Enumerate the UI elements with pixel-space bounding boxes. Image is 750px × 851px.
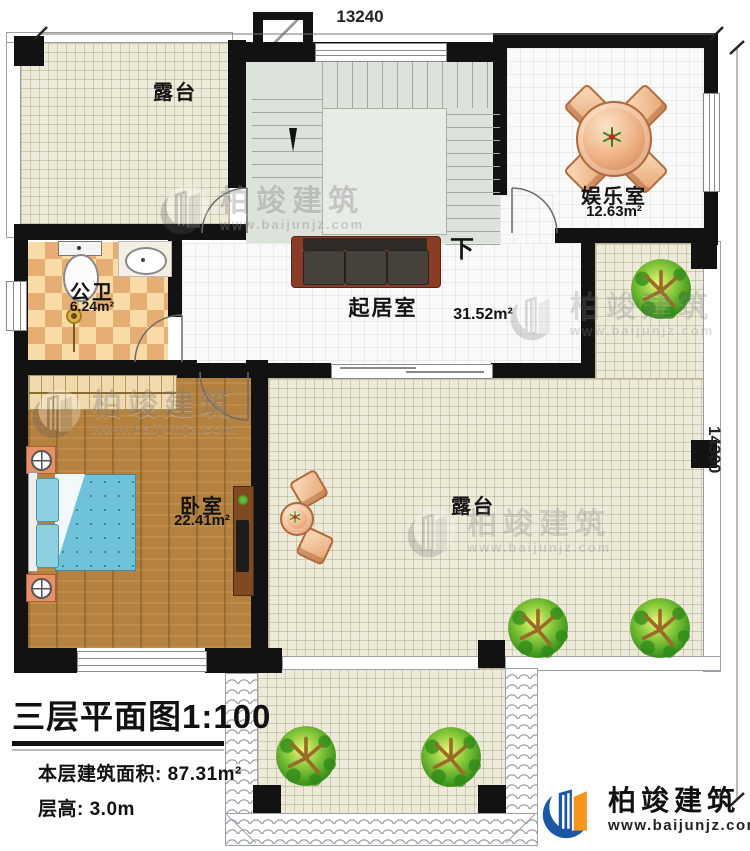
column — [478, 640, 505, 668]
plan-scale: 1:100 — [182, 698, 271, 735]
brand-website: www.baijunjz.com — [608, 817, 750, 834]
room-area-bathroom: 6.24m² — [56, 298, 128, 314]
brand-name: 柏竣建筑 — [608, 786, 750, 817]
stair-landing — [322, 108, 447, 235]
wall — [491, 363, 595, 378]
wall — [14, 363, 28, 673]
wall — [228, 40, 246, 188]
sink-basin — [125, 247, 167, 275]
terrace-railing-bottom-mid — [282, 656, 480, 670]
window — [77, 651, 207, 672]
wall — [205, 648, 282, 673]
floor-height-value: 3.0m — [90, 799, 135, 820]
window — [315, 43, 447, 62]
desk-plant — [238, 495, 248, 505]
sliding-door-panel — [406, 371, 484, 373]
table-flower-icon — [600, 125, 624, 149]
wall — [14, 36, 44, 66]
title-underline — [12, 741, 224, 746]
column — [478, 785, 506, 813]
sliding-door-panel — [340, 367, 416, 369]
plan-title: 三层平面图1:100 — [12, 690, 312, 738]
wall — [493, 33, 718, 48]
floor-plan: 下 露台 娱乐室 12.63m² 公卫 6.24m² 起居室 31.5 — [0, 0, 750, 851]
stair-down-label: 下 — [443, 229, 483, 264]
toilet-button — [77, 246, 81, 250]
room-area-living: 31.52m² — [438, 306, 528, 324]
floor-area-label: 本层建筑面积: — [38, 764, 162, 785]
room-area-bedroom: 22.41m² — [156, 512, 248, 529]
terrace-main-floor — [268, 378, 705, 660]
plan-title-text: 三层平面图 — [12, 698, 182, 735]
floor-area-value: 87.31m² — [168, 764, 242, 785]
wall — [14, 224, 246, 240]
roof-tile-band-right — [505, 668, 538, 816]
dimension-top: 13240 — [315, 7, 405, 27]
title-block: 三层平面图1:100 本层建筑面积: 87.31m² 层高: 3.0m — [12, 690, 312, 821]
hall-floor — [500, 195, 555, 243]
stair-treads-left — [252, 95, 322, 178]
nightstand-lamp — [31, 450, 52, 471]
sink-drain — [141, 258, 145, 262]
brand-logo: 柏竣建筑 www.baijunjz.com — [540, 780, 750, 840]
dimension-right: 14300 — [704, 426, 724, 473]
window — [703, 93, 720, 192]
room-label-terrace-main: 露台 — [428, 490, 518, 519]
wardrobe — [28, 375, 177, 410]
sofa-cushion — [303, 250, 345, 285]
brand-logo-icon — [540, 780, 600, 840]
wall — [14, 648, 77, 673]
pillow — [36, 478, 59, 522]
table-flower-icon — [288, 510, 302, 524]
room-label-terrace-top: 露台 — [130, 76, 220, 105]
sofa-back — [303, 238, 427, 250]
room-label-living: 起居室 — [328, 292, 438, 322]
sofa-cushion — [387, 250, 429, 285]
window — [6, 281, 27, 331]
column — [691, 241, 717, 269]
wall — [168, 363, 331, 378]
floor-height-row: 层高: 3.0m — [38, 794, 312, 821]
floor-area-row: 本层建筑面积: 87.31m² — [38, 759, 312, 786]
title-underline-2 — [12, 749, 224, 751]
terrace-top-floor — [20, 42, 230, 226]
floor-drain-stem — [73, 324, 75, 352]
stair-treads-right — [445, 108, 500, 245]
stair-treads-top — [322, 62, 500, 108]
nightstand-lamp — [31, 578, 52, 599]
room-area-entertainment: 12.63m² — [562, 203, 666, 220]
wall — [581, 228, 595, 378]
pillow — [36, 524, 59, 568]
floor-height-label: 层高: — [38, 799, 84, 820]
stair-direction-arrow — [289, 128, 297, 152]
sofa-cushion — [345, 250, 387, 285]
